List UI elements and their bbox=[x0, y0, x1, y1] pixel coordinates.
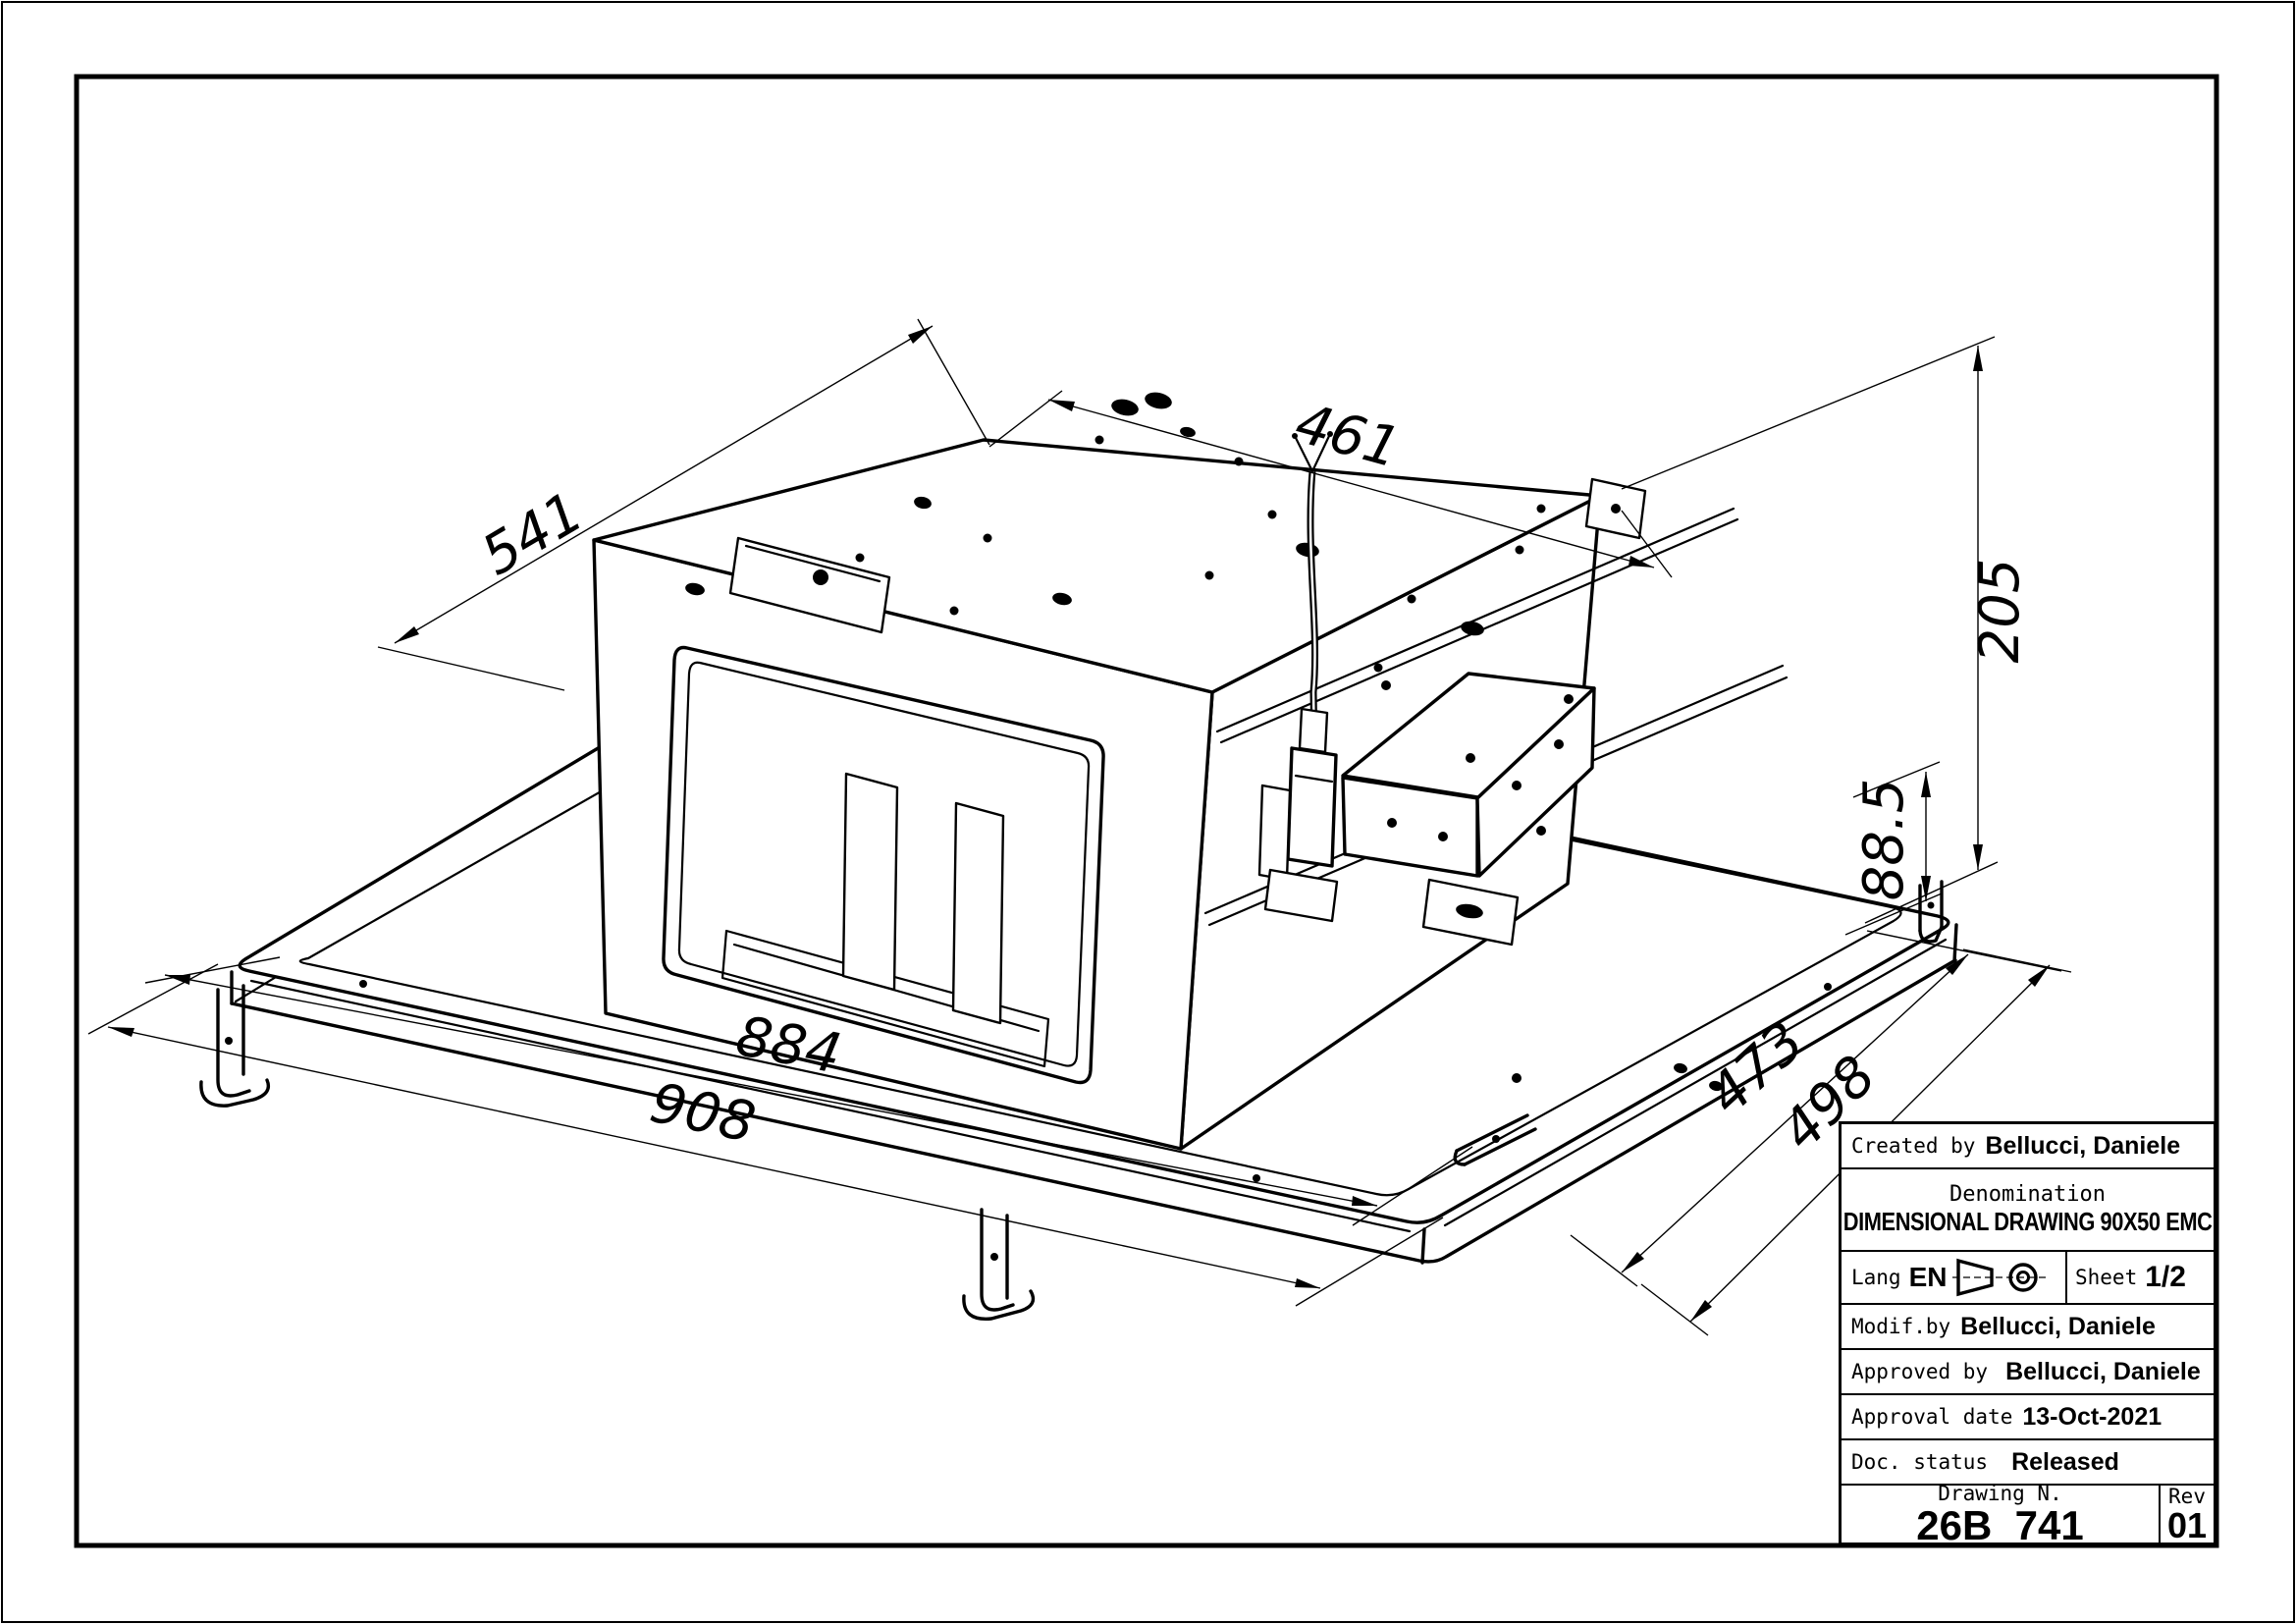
plug-latch bbox=[1259, 785, 1290, 880]
title-row-modif: Modif.by Bellucci, Daniele bbox=[1842, 1305, 2214, 1350]
lang-label: Lang bbox=[1851, 1266, 1901, 1289]
title-row-approved: Approved by Bellucci, Daniele bbox=[1842, 1350, 2214, 1395]
created-by-label: Created by bbox=[1851, 1134, 1975, 1158]
title-row-denomination: Denomination DIMENSIONAL DRAWING 90X50 E… bbox=[1842, 1169, 2214, 1252]
drawing-sheet: 541 461 205 88.5 bbox=[0, 0, 2296, 1624]
dim-label-88-5: 88.5 bbox=[1852, 779, 1916, 901]
approved-by-value: Bellucci, Daniele bbox=[2005, 1358, 2201, 1386]
opening-divider-1 bbox=[843, 774, 897, 990]
created-by-value: Bellucci, Daniele bbox=[1985, 1132, 2180, 1161]
first-angle-projection-icon bbox=[1952, 1255, 2049, 1300]
lang-value: EN bbox=[1909, 1262, 1948, 1293]
cable-ferrule bbox=[1300, 709, 1327, 752]
foot-front-center bbox=[964, 1210, 1034, 1319]
title-row-drawing-number: Drawing N. 26B_741 Rev 01 bbox=[1842, 1486, 2214, 1543]
title-row-created: Created by Bellucci, Daniele bbox=[1842, 1124, 2214, 1169]
sheet-label: Sheet bbox=[2075, 1266, 2137, 1289]
doc-status-value: Released bbox=[2011, 1448, 2119, 1477]
dim-label-461: 461 bbox=[1289, 392, 1407, 481]
dim-label-205: 205 bbox=[1968, 559, 2032, 664]
sheet-value: 1/2 bbox=[2145, 1261, 2186, 1294]
plug-connector bbox=[1288, 748, 1336, 866]
drawing-n-value: 26B_741 bbox=[1916, 1505, 2083, 1543]
approved-by-label: Approved by bbox=[1851, 1360, 1988, 1383]
approval-date-value: 13-Oct-2021 bbox=[2022, 1403, 2162, 1432]
title-row-lang-sheet: Lang EN Sheet 1/2 bbox=[1842, 1252, 2214, 1305]
dim-label-908: 908 bbox=[645, 1071, 761, 1156]
doc-status-label: Doc. status bbox=[1851, 1450, 1988, 1474]
title-row-doc-status: Doc. status Released bbox=[1842, 1440, 2214, 1486]
dim-label-541: 541 bbox=[471, 480, 594, 588]
denomination-label: Denomination bbox=[1949, 1182, 2106, 1207]
modif-by-value: Bellucci, Daniele bbox=[1960, 1313, 2156, 1341]
title-block: Created by Bellucci, Daniele Denominatio… bbox=[1839, 1121, 2216, 1545]
approval-date-label: Approval date bbox=[1851, 1405, 2012, 1429]
rev-value: 01 bbox=[2167, 1508, 2207, 1543]
modif-by-label: Modif.by bbox=[1851, 1315, 1950, 1338]
opening-divider-2 bbox=[953, 803, 1003, 1023]
dim-205: 205 bbox=[1622, 337, 2032, 923]
denomination-value: DIMENSIONAL DRAWING 90X50 EMC bbox=[1843, 1207, 2213, 1237]
title-row-approval-date: Approval date 13-Oct-2021 bbox=[1842, 1395, 2214, 1440]
